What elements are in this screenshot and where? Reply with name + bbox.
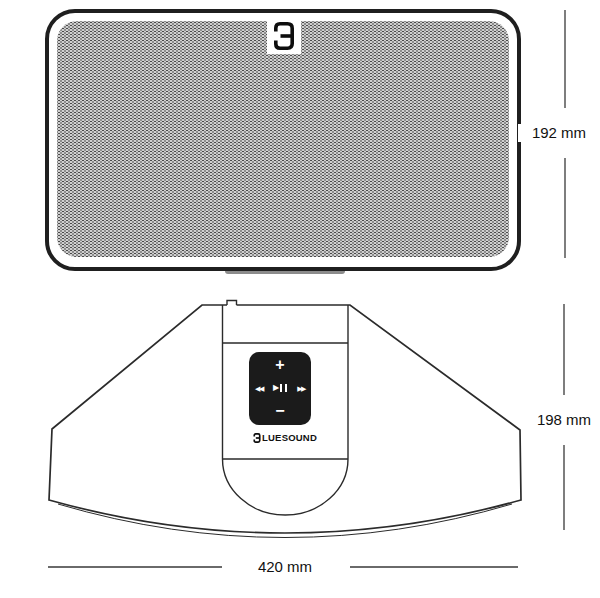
width-dimension-label: 420 mm bbox=[243, 558, 327, 576]
bluesound-logo-icon bbox=[271, 21, 297, 51]
wordmark-text: LUESOUND bbox=[262, 433, 317, 443]
depth-dimension-label: 198 mm bbox=[523, 411, 600, 429]
speaker-front-view bbox=[45, 9, 521, 271]
control-pad: + ◀◀ ▶ ▶▶ − bbox=[249, 352, 311, 425]
height-dimension-label: 192 mm bbox=[518, 124, 600, 142]
bluesound-wordmark: LUESOUND bbox=[253, 432, 317, 444]
pause-bars-icon bbox=[280, 384, 287, 392]
speaker-grille bbox=[57, 21, 509, 257]
skip-back-icon: ◀◀ bbox=[255, 385, 263, 392]
bluesound-wordmark-b-icon bbox=[253, 433, 261, 443]
dimension-drawing: + ◀◀ ▶ ▶▶ − LUESOUND 192 mm 198 mm 420 m… bbox=[0, 0, 600, 598]
top-view-notch bbox=[227, 301, 237, 306]
transport-controls: ◀◀ ▶ ▶▶ bbox=[249, 384, 311, 392]
volume-down-label: − bbox=[275, 403, 284, 419]
bluesound-logo-badge bbox=[267, 17, 301, 54]
play-pause-icon: ▶ bbox=[273, 384, 287, 392]
skip-forward-icon: ▶▶ bbox=[297, 385, 305, 392]
top-panel-front-arc bbox=[223, 459, 349, 515]
volume-up-label: + bbox=[275, 357, 284, 373]
